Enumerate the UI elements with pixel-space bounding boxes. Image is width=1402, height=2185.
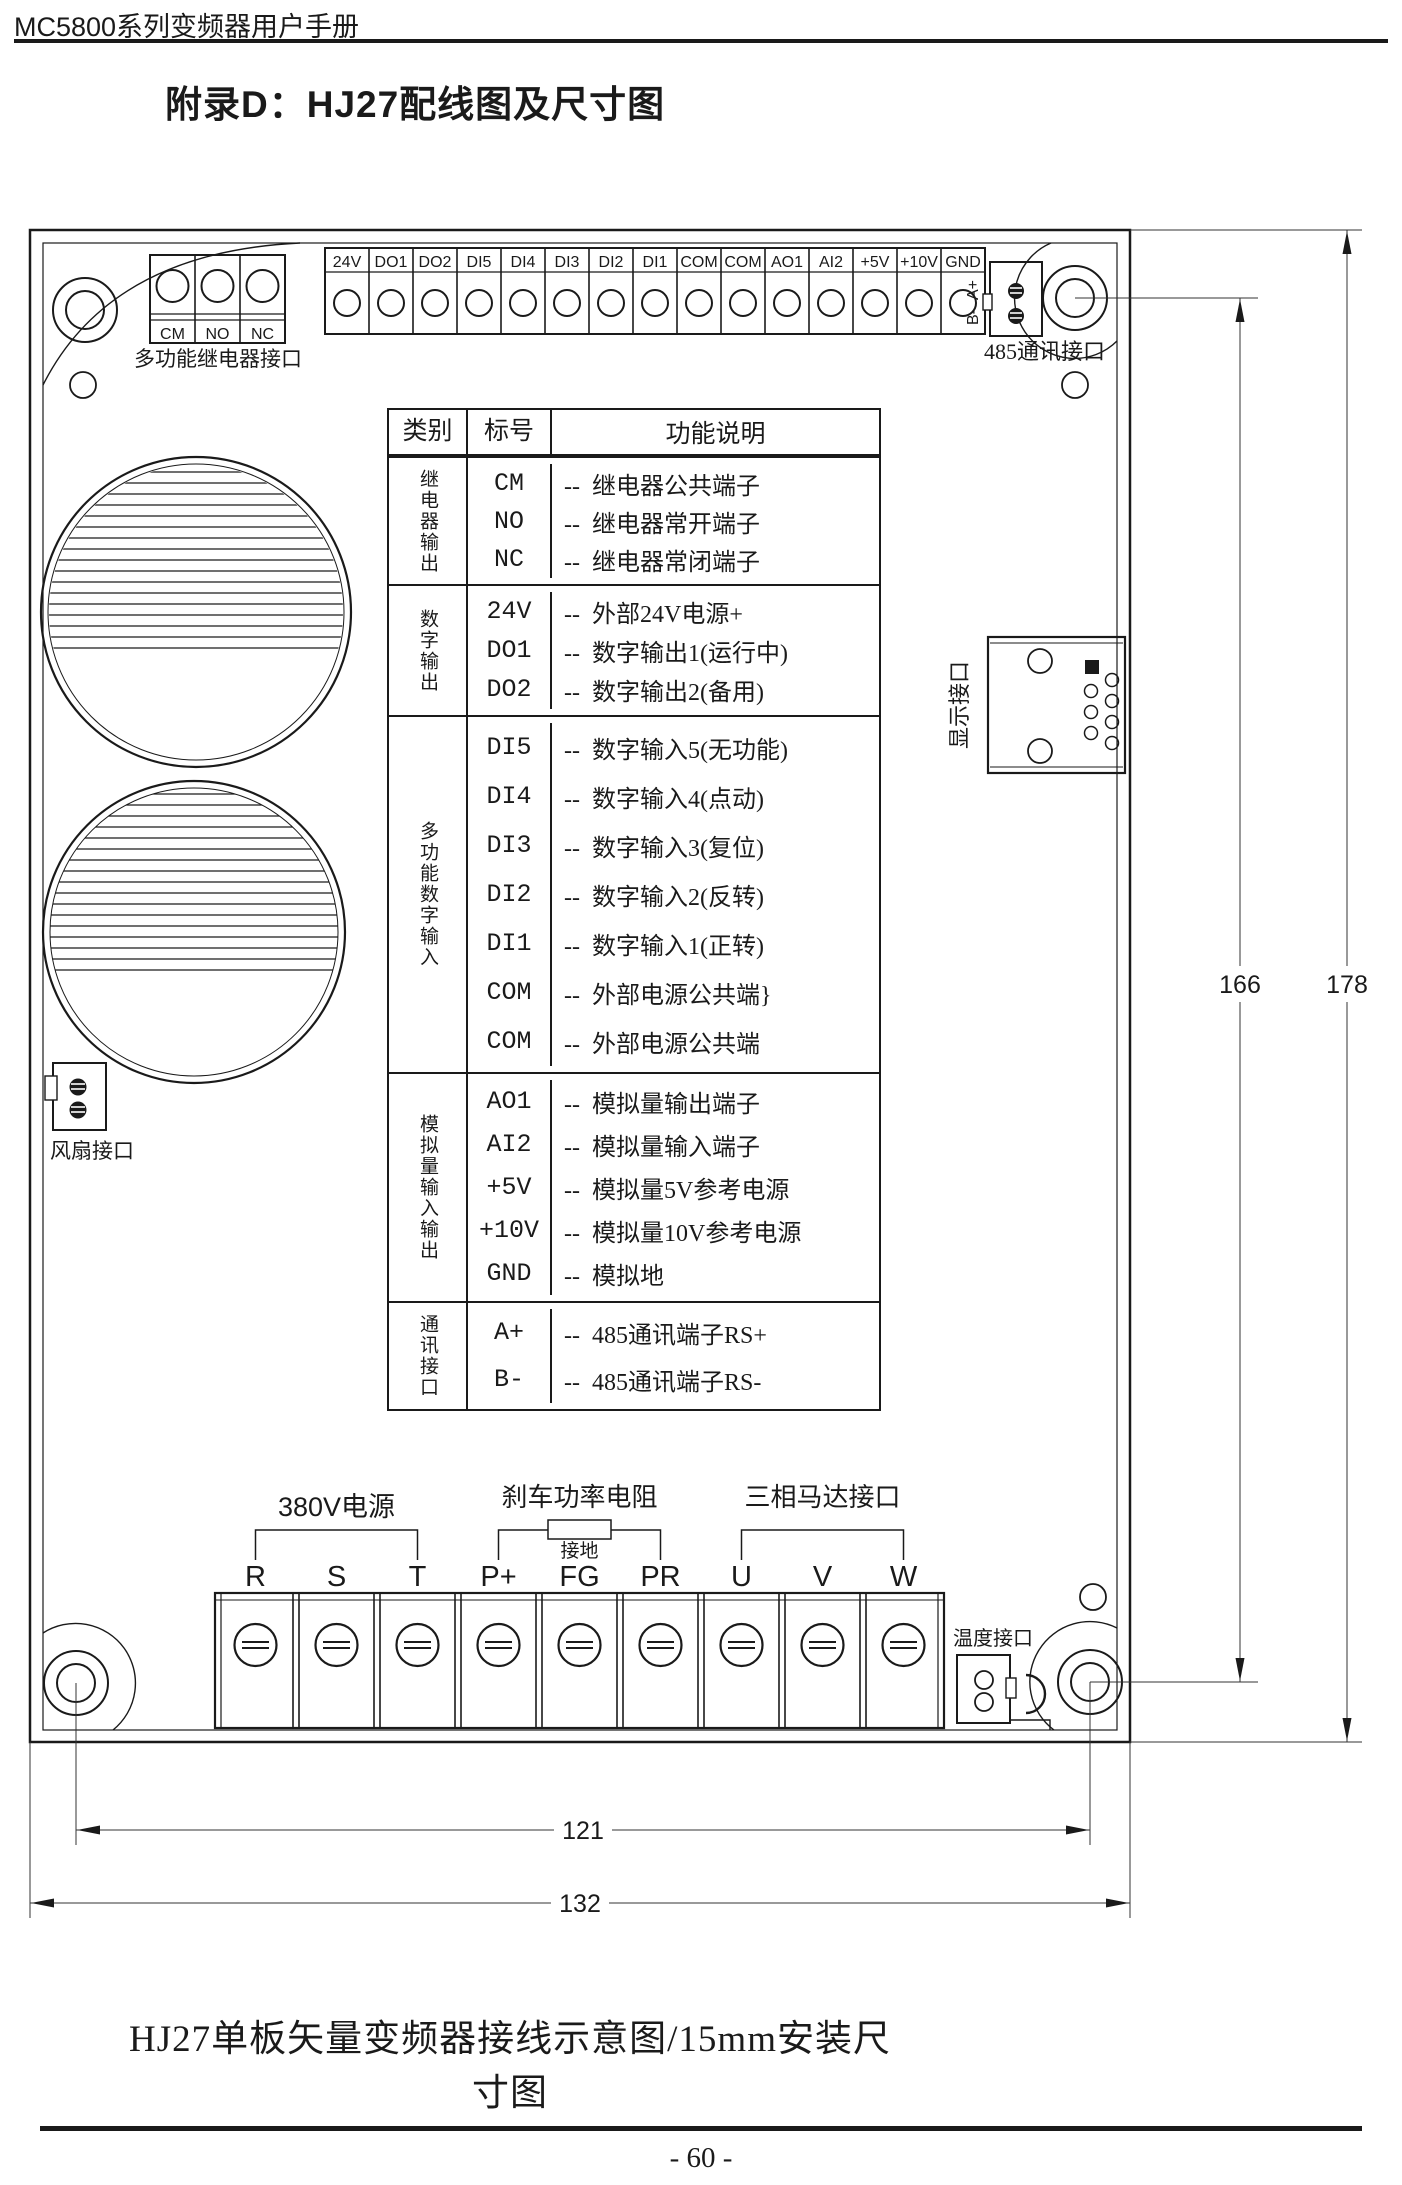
top-terminal-label: AO1 [771, 254, 803, 271]
table-group-comm: 通讯接口 A+-- 485通讯端子RS+ B--- 485通讯端子RS- [389, 1301, 879, 1409]
capacitor-top [41, 457, 351, 767]
bottom-terminal-label: U [731, 1561, 752, 1593]
comm-pin-b-label: B- [965, 309, 982, 325]
table-row: DI3-- 数字输入3(复位) [468, 821, 879, 870]
comm-pin-a-label: A+ [965, 280, 982, 300]
top-terminal-label: DI4 [511, 254, 536, 271]
terminal-code: DI4 [468, 772, 552, 821]
group-category: 多功能数字输入 [414, 821, 441, 968]
terminal-code: +10V [468, 1209, 552, 1252]
fan-port: 风扇接口 [45, 1063, 134, 1163]
relay-pin-label: NO [206, 326, 230, 343]
terminal-code: GND [468, 1252, 552, 1295]
ground-label: 接地 [560, 1540, 598, 1562]
table-row: NO-- 继电器常开端子 [468, 502, 879, 540]
corner-arc-bottom-right [1030, 1622, 1117, 1730]
display-port-caption: 显示接口 [947, 661, 972, 749]
table-row: DO1-- 数字输出1(运行中) [468, 631, 879, 670]
table-row: +5V-- 模拟量5V参考电源 [468, 1166, 879, 1209]
dim-132-label: 132 [559, 1890, 601, 1918]
terminal-description: -- 数字输入3(复位) [552, 828, 879, 863]
group-category: 数字输出 [414, 609, 441, 693]
terminal-description: -- 模拟量10V参考电源 [552, 1213, 879, 1248]
top-terminal-label: DI5 [467, 254, 492, 271]
pin1-square [1085, 660, 1099, 674]
table-row: COM-- 外部电源公共端 [468, 1017, 879, 1066]
figure-caption: HJ27单板矢量变频器接线示意图/15mm安装尺寸图 [120, 2008, 900, 2116]
bottom-terminal-label: R [245, 1561, 266, 1593]
display-port: 显示接口 [947, 637, 1125, 773]
terminal-code: NO [468, 502, 552, 540]
comm-485-connector: A+ B- 485通讯接口 [965, 262, 1105, 364]
dim-166-label: 166 [1219, 971, 1261, 999]
top-terminal-label: +5V [861, 254, 890, 271]
brake-group-label: 刹车功率电阻 [501, 1483, 657, 1512]
capacitor-hatch [40, 794, 348, 970]
terminal-description: -- 数字输入5(无功能) [552, 730, 879, 765]
top-terminal-label: +10V [900, 254, 938, 271]
col-header-function: 功能说明 [552, 414, 879, 450]
relay-pin-label: CM [160, 326, 185, 343]
terminal-description: -- 模拟量输入端子 [552, 1127, 879, 1162]
power-group-label: 380V电源 [278, 1492, 395, 1522]
table-row: +10V-- 模拟量10V参考电源 [468, 1209, 879, 1252]
terminal-code: DO1 [468, 631, 552, 670]
small-hole [1062, 372, 1088, 398]
table-row: GND-- 模拟地 [468, 1252, 879, 1295]
terminal-code: A+ [468, 1309, 552, 1356]
top-terminal-strip: 24V DO1 DO2 DI5 DI4 DI3 DI2 DI1 COM COM … [325, 248, 985, 334]
terminal-description: -- 数字输出1(运行中) [552, 633, 879, 668]
terminal-code: AI2 [468, 1123, 552, 1166]
terminal-description: -- 数字输入2(反转) [552, 877, 879, 912]
table-group-digital-output: 数字输出 24V-- 外部24V电源+ DO1-- 数字输出1(运行中) DO2… [389, 584, 879, 715]
capacitor-hatch [41, 472, 351, 648]
corner-arc-bottom-left [43, 1623, 135, 1730]
table-group-relay-output: 继电器输出 CM-- 继电器公共端子 NO-- 继电器常开端子 NC-- 继电器… [389, 456, 879, 584]
bottom-terminal-label: V [813, 1561, 833, 1593]
terminal-description: -- 模拟量5V参考电源 [552, 1170, 879, 1205]
top-terminal-label: COM [680, 254, 717, 271]
terminal-code: COM [468, 968, 552, 1017]
table-row: DI5-- 数字输入5(无功能) [468, 723, 879, 772]
terminal-description: -- 数字输入1(正转) [552, 926, 879, 961]
table-row: AO1-- 模拟量输出端子 [468, 1080, 879, 1123]
terminal-function-table: 类别 标号 功能说明 继电器输出 CM-- 继电器公共端子 NO-- 继电器常开… [387, 408, 881, 1411]
table-row: DI4-- 数字输入4(点动) [468, 772, 879, 821]
terminal-description: -- 数字输出2(备用) [552, 672, 879, 707]
bottom-terminal-label: FG [559, 1561, 599, 1593]
dim-121-label: 121 [562, 1817, 604, 1845]
terminal-code: 24V [468, 592, 552, 631]
terminal-code: NC [468, 540, 552, 578]
terminal-code: DI3 [468, 821, 552, 870]
table-row: NC-- 继电器常闭端子 [468, 540, 879, 578]
temp-port: 温度接口 [953, 1627, 1050, 1730]
bottom-terminal-label: T [409, 1561, 427, 1593]
terminal-code: +5V [468, 1166, 552, 1209]
relay-connector-caption: 多功能继电器接口 [134, 347, 302, 371]
bottom-terminal-label: S [327, 1561, 346, 1593]
ground-resistor-box [548, 1520, 611, 1539]
table-group-analog-io: 模拟量输入输出 AO1-- 模拟量输出端子 AI2-- 模拟量输入端子 +5V-… [389, 1072, 879, 1301]
terminal-description: -- 外部电源公共端} [552, 975, 879, 1010]
comm-port-caption: 485通讯接口 [984, 339, 1105, 364]
top-terminal-label: DI1 [643, 254, 668, 271]
table-row: DI2-- 数字输入2(反转) [468, 870, 879, 919]
footer-rule [40, 2126, 1362, 2131]
top-terminal-label: DO2 [419, 254, 452, 271]
col-header-category: 类别 [389, 410, 468, 454]
table-row: DI1-- 数字输入1(正转) [468, 919, 879, 968]
group-category: 通讯接口 [414, 1314, 441, 1398]
terminal-description: -- 外部电源公共端 [552, 1024, 879, 1059]
terminal-description: -- 继电器公共端子 [552, 466, 879, 501]
relay-connector: CM NO NC 多功能继电器接口 [134, 255, 302, 371]
mounting-hole-top-left [53, 278, 117, 342]
table-row: COM-- 外部电源公共端} [468, 968, 879, 1017]
terminal-description: -- 485通讯端子RS+ [552, 1315, 879, 1350]
terminal-description: -- 继电器常开端子 [552, 504, 879, 539]
top-terminal-label: DI3 [555, 254, 580, 271]
terminal-description: -- 模拟量输出端子 [552, 1084, 879, 1119]
dim-178-label: 178 [1326, 971, 1368, 999]
relay-pin-label: NC [251, 326, 274, 343]
top-terminal-label: GND [945, 254, 981, 271]
terminal-code: COM [468, 1017, 552, 1066]
terminal-description: -- 数字输入4(点动) [552, 779, 879, 814]
table-group-digital-input: 多功能数字输入 DI5-- 数字输入5(无功能) DI4-- 数字输入4(点动)… [389, 715, 879, 1072]
table-row: A+-- 485通讯端子RS+ [468, 1309, 879, 1356]
table-row: DO2-- 数字输出2(备用) [468, 670, 879, 709]
bottom-terminal-label: W [890, 1561, 918, 1593]
top-terminal-label: 24V [333, 254, 362, 271]
small-hole [1080, 1584, 1106, 1610]
terminal-code: DI5 [468, 723, 552, 772]
table-row: CM-- 继电器公共端子 [468, 464, 879, 502]
terminal-description: -- 模拟地 [552, 1256, 879, 1291]
manual-page: MC5800系列变频器用户手册 附录D：HJ27配线图及尺寸图 [0, 0, 1402, 2185]
motor-group-label: 三相马达接口 [744, 1483, 900, 1512]
terminal-code: CM [468, 464, 552, 502]
top-terminal-label: DI2 [599, 254, 624, 271]
capacitor-bottom [40, 781, 348, 1083]
group-category: 继电器输出 [414, 469, 441, 574]
bottom-terminal-label: PR [640, 1561, 680, 1593]
terminal-description: -- 485通讯端子RS- [552, 1362, 879, 1397]
terminal-code: DO2 [468, 670, 552, 709]
terminal-description: -- 外部24V电源+ [552, 594, 879, 629]
page-number: - 60 - [0, 2142, 1402, 2175]
top-terminal-label: DO1 [375, 254, 408, 271]
small-hole [70, 372, 96, 398]
terminal-code: B- [468, 1356, 552, 1403]
table-row: B--- 485通讯端子RS- [468, 1356, 879, 1403]
bottom-terminal-strip: R S T P+ FG PR U V W [215, 1561, 944, 1728]
screw-terminals [235, 1624, 925, 1666]
top-terminal-label: AI2 [819, 254, 843, 271]
temp-port-caption: 温度接口 [953, 1627, 1033, 1650]
bottom-terminal-label: P+ [480, 1561, 516, 1593]
table-row: AI2-- 模拟量输入端子 [468, 1123, 879, 1166]
table-row: 24V-- 外部24V电源+ [468, 592, 879, 631]
col-header-code: 标号 [468, 410, 552, 454]
terminal-code: AO1 [468, 1080, 552, 1123]
terminal-code: DI2 [468, 870, 552, 919]
group-category: 模拟量输入输出 [414, 1114, 441, 1261]
terminal-description: -- 继电器常闭端子 [552, 542, 879, 577]
table-header-row: 类别 标号 功能说明 [389, 410, 879, 456]
top-terminal-label: COM [724, 254, 761, 271]
terminal-code: DI1 [468, 919, 552, 968]
fan-port-caption: 风扇接口 [50, 1139, 134, 1163]
